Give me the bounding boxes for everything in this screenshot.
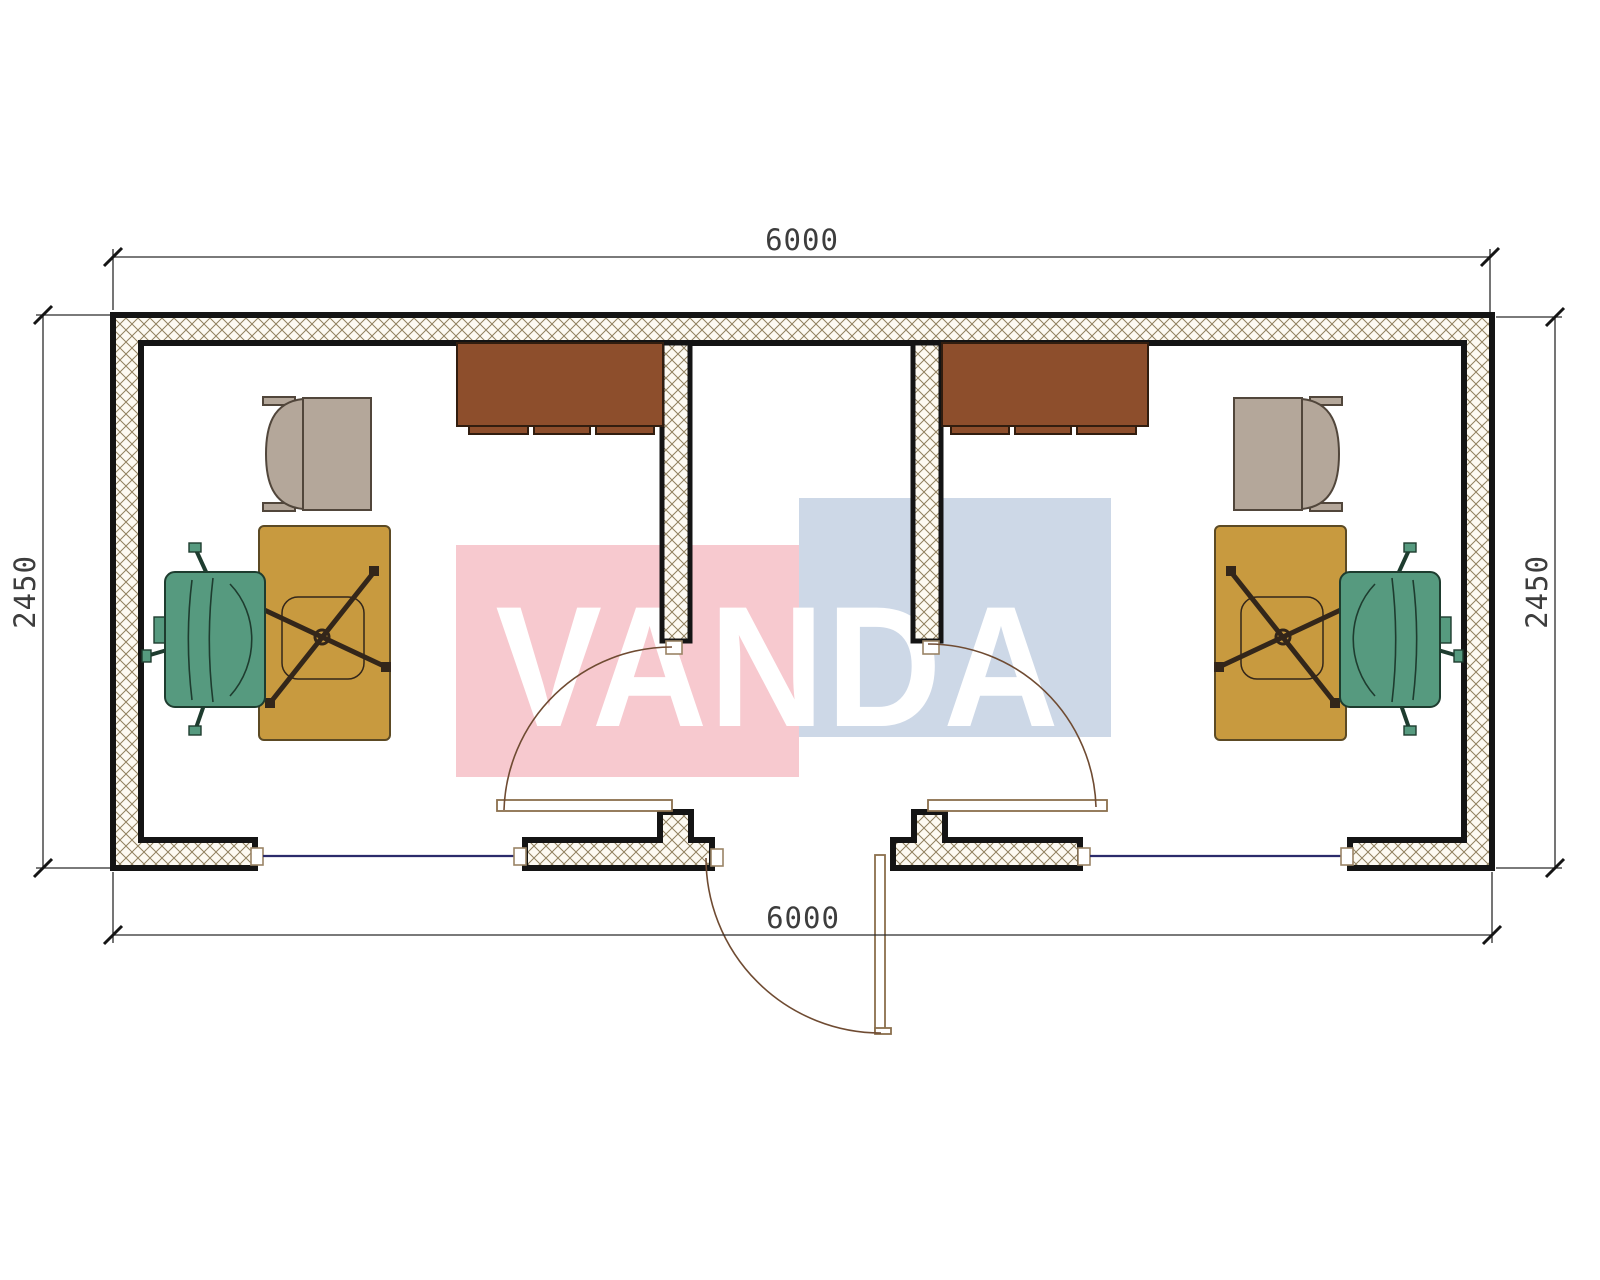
chair-base-caster: [381, 662, 391, 672]
chair-caster-foot: [142, 650, 151, 662]
dimension-label-bottom: 6000: [766, 901, 840, 935]
chair-caster-foot: [1454, 650, 1463, 662]
desk-right: [1214, 526, 1353, 740]
chair-base-caster: [1330, 698, 1340, 708]
cabinet-foot: [951, 426, 1009, 434]
door-swing-arc: [706, 858, 881, 1033]
armchair-back: [1302, 399, 1339, 509]
armchair-seat: [303, 398, 371, 510]
cabinet-foot: [534, 426, 590, 434]
chair-caster: [196, 705, 204, 728]
dimension-bottom: 6000: [104, 872, 1501, 944]
door-leaf: [875, 855, 885, 1031]
door-jamb: [711, 849, 723, 866]
cabinet-foot: [469, 426, 528, 434]
dimension-top: 6000: [104, 223, 1499, 312]
armchair-back: [266, 399, 303, 509]
window-jamb: [1078, 848, 1090, 865]
partition-wall-right: [913, 343, 941, 641]
window-jamb: [514, 848, 526, 865]
dimension-left: 2450: [8, 306, 110, 877]
office-chair-left: [142, 543, 265, 735]
chair-base-caster: [1226, 566, 1236, 576]
armchair-left: [263, 397, 371, 511]
chair-caster-foot: [1404, 726, 1416, 735]
office-chair-right: [1340, 543, 1463, 735]
chair-seat: [1340, 572, 1440, 707]
chair-caster-foot: [1404, 543, 1416, 552]
cabinet-left: [457, 343, 663, 434]
window-jamb: [251, 848, 263, 865]
partition-wall-left: [662, 343, 690, 641]
cabinet-body: [942, 343, 1148, 426]
chair-caster: [1398, 550, 1409, 574]
cabinet-body: [457, 343, 663, 426]
cabinet-right: [942, 343, 1148, 434]
watermark-text: VANDA: [496, 571, 1061, 763]
door-entrance: [706, 849, 891, 1034]
window-jamb: [1341, 848, 1353, 865]
chair-caster: [1401, 705, 1409, 728]
desk-left: [252, 526, 391, 740]
window-right: [1078, 848, 1353, 865]
armchair-right: [1234, 397, 1342, 511]
dimension-label-left: 2450: [8, 555, 42, 629]
watermark: VANDA: [456, 498, 1111, 777]
chair-base-caster: [1214, 662, 1224, 672]
window-left: [251, 848, 526, 865]
cabinet-foot: [1077, 426, 1136, 434]
cabinet-foot: [1015, 426, 1071, 434]
floor-plan-canvas: VANDA: [0, 0, 1600, 1280]
chair-base-caster: [369, 566, 379, 576]
armchair-seat: [1234, 398, 1302, 510]
chair-base-caster: [265, 698, 275, 708]
door-jamb: [923, 641, 939, 654]
door-leaf: [928, 800, 1107, 811]
chair-caster-foot: [189, 543, 201, 552]
door-leaf: [497, 800, 672, 811]
dimension-right: 2450: [1496, 308, 1564, 877]
chair-caster: [196, 550, 207, 574]
bottom-wall-right-of-entrance: [893, 812, 1080, 868]
dimension-label-right: 2450: [1520, 555, 1554, 629]
dimension-label-top: 6000: [765, 223, 839, 257]
floor-plan-drawing: VANDA: [0, 0, 1600, 1280]
chair-caster-foot: [189, 726, 201, 735]
chair-seat: [165, 572, 265, 707]
bottom-wall-left-of-entrance: [525, 812, 712, 868]
cabinet-foot: [596, 426, 654, 434]
